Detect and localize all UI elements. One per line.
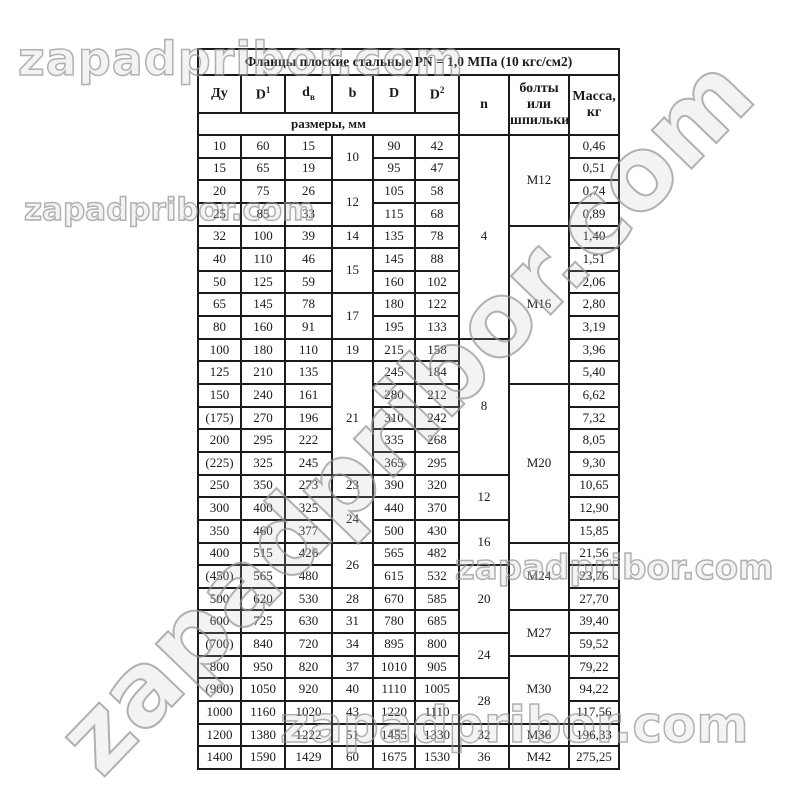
cell-du: 1200 [198,724,241,747]
cell-dv: 630 [285,610,332,633]
cell-dv: 91 [285,316,332,339]
cell-du: 1400 [198,746,241,769]
cell-d2: 184 [415,361,459,384]
cell-d: 780 [373,610,415,633]
cell-b: 40 [332,678,373,701]
cell-mass: 0,46 [569,135,619,158]
cell-d: 1110 [373,678,415,701]
cell-n: 32 [459,724,509,747]
cell-n: 4 [459,135,509,339]
cell-dv: 26 [285,180,332,203]
cell-d2: 800 [415,633,459,656]
cell-du: (225) [198,452,241,475]
cell-dv: 426 [285,543,332,566]
cell-mass: 196,33 [569,724,619,747]
column-header-row: Ду D1 dв b D D2 n болты или шпильки Масс… [198,75,619,113]
cell-mass: 59,52 [569,633,619,656]
cell-d: 670 [373,588,415,611]
cell-b: 28 [332,588,373,611]
cell-du: (700) [198,633,241,656]
cell-dv: 245 [285,452,332,475]
table-header: Фланцы плоские стальные PN = 1,0 МПа (10… [198,49,619,135]
cell-d1: 75 [241,180,285,203]
cell-d2: 268 [415,429,459,452]
cell-d: 500 [373,520,415,543]
cell-mass: 39,40 [569,610,619,633]
cell-n: 24 [459,633,509,678]
table-row: 800950820371010905М3079,22 [198,656,619,679]
cell-dv: 19 [285,158,332,181]
cell-dv: 1020 [285,701,332,724]
cell-mass: 3,96 [569,339,619,362]
cell-d2: 102 [415,271,459,294]
cell-d: 335 [373,429,415,452]
cell-d1: 110 [241,248,285,271]
cell-n: 8 [459,339,509,475]
cell-b: 60 [332,746,373,769]
cell-d: 215 [373,339,415,362]
cell-du: 32 [198,226,241,249]
cell-bolts: М27 [509,610,569,655]
cell-b: 34 [332,633,373,656]
cell-d1: 65 [241,158,285,181]
cell-bolts: М24 [509,543,569,611]
cell-mass: 0,51 [569,158,619,181]
col-header-dv: dв [285,75,332,113]
col-header-dv-base: d [302,85,310,100]
cell-mass: 27,70 [569,588,619,611]
cell-b: 12 [332,180,373,225]
cell-d1: 565 [241,565,285,588]
cell-d1: 270 [241,407,285,430]
cell-b: 15 [332,248,373,293]
cell-dv: 720 [285,633,332,656]
cell-d2: 242 [415,407,459,430]
cell-dv: 78 [285,293,332,316]
cell-d2: 295 [415,452,459,475]
cell-d2: 88 [415,248,459,271]
cell-d: 565 [373,543,415,566]
cell-d1: 240 [241,384,285,407]
col-header-d2-base: D [430,87,440,102]
cell-mass: 12,90 [569,497,619,520]
cell-d1: 125 [241,271,285,294]
cell-b: 51 [332,724,373,747]
cell-d2: 1530 [415,746,459,769]
cell-d: 895 [373,633,415,656]
cell-d1: 325 [241,452,285,475]
col-header-d1-base: D [256,87,266,102]
cell-d: 1675 [373,746,415,769]
cell-b: 26 [332,543,373,588]
cell-d2: 370 [415,497,459,520]
cell-d: 365 [373,452,415,475]
cell-bolts: М12 [509,135,569,226]
cell-dv: 196 [285,407,332,430]
table-row: 150240161280212М206,62 [198,384,619,407]
cell-du: 350 [198,520,241,543]
cell-d1: 180 [241,339,285,362]
cell-mass: 3,19 [569,316,619,339]
cell-d1: 145 [241,293,285,316]
cell-bolts: М42 [509,746,569,769]
cell-d: 280 [373,384,415,407]
cell-du: 1000 [198,701,241,724]
sizes-subheader: размеры, мм [198,113,459,135]
cell-d1: 1380 [241,724,285,747]
cell-d2: 122 [415,293,459,316]
col-header-mass: Масса, кг [569,75,619,135]
cell-du: 250 [198,475,241,498]
cell-d: 615 [373,565,415,588]
cell-d: 145 [373,248,415,271]
cell-d2: 532 [415,565,459,588]
flange-spec-table: Фланцы плоские стальные PN = 1,0 МПа (10… [197,48,620,770]
cell-dv: 820 [285,656,332,679]
cell-d: 1455 [373,724,415,747]
cell-mass: 23,76 [569,565,619,588]
cell-d2: 1005 [415,678,459,701]
cell-du: 15 [198,158,241,181]
cell-d1: 100 [241,226,285,249]
table-row: 120013801222511455133032М36196,33 [198,724,619,747]
cell-d1: 515 [241,543,285,566]
cell-d1: 950 [241,656,285,679]
col-header-d1: D1 [241,75,285,113]
cell-d: 115 [373,203,415,226]
cell-d2: 320 [415,475,459,498]
cell-d2: 78 [415,226,459,249]
cell-dv: 1429 [285,746,332,769]
cell-d2: 133 [415,316,459,339]
scanned-document-page: zapadpribor.com zapadpribor.com zapadpri… [0,0,800,800]
cell-du: 200 [198,429,241,452]
cell-du: 400 [198,543,241,566]
cell-n: 20 [459,565,509,633]
cell-b: 24 [332,497,373,542]
cell-du: 20 [198,180,241,203]
cell-d: 180 [373,293,415,316]
cell-mass: 2,80 [569,293,619,316]
col-header-n: n [459,75,509,135]
cell-du: 800 [198,656,241,679]
table-row: 32100391413578М161,40 [198,226,619,249]
cell-d1: 840 [241,633,285,656]
cell-b: 10 [332,135,373,180]
cell-du: 80 [198,316,241,339]
table-title-row: Фланцы плоские стальные PN = 1,0 МПа (10… [198,49,619,75]
cell-d1: 60 [241,135,285,158]
cell-b: 43 [332,701,373,724]
cell-bolts: М16 [509,226,569,384]
col-header-du: Ду [198,75,241,113]
cell-b: 17 [332,293,373,338]
cell-d2: 58 [415,180,459,203]
flange-table-body: 1060151090424М120,4615651995470,51207526… [198,135,619,769]
cell-mass: 117,56 [569,701,619,724]
cell-mass: 15,85 [569,520,619,543]
cell-d: 1220 [373,701,415,724]
cell-bolts: М20 [509,384,569,542]
cell-du: 300 [198,497,241,520]
cell-d2: 905 [415,656,459,679]
cell-dv: 273 [285,475,332,498]
cell-d1: 85 [241,203,285,226]
table-row: 60072563031780685М2739,40 [198,610,619,633]
cell-mass: 275,25 [569,746,619,769]
cell-d: 95 [373,158,415,181]
cell-dv: 33 [285,203,332,226]
cell-dv: 39 [285,226,332,249]
cell-d1: 160 [241,316,285,339]
table-row: 140015901429601675153036М42275,25 [198,746,619,769]
cell-d: 390 [373,475,415,498]
cell-du: 40 [198,248,241,271]
cell-d2: 47 [415,158,459,181]
cell-du: 10 [198,135,241,158]
cell-du: 150 [198,384,241,407]
cell-d2: 1110 [415,701,459,724]
cell-d: 105 [373,180,415,203]
cell-d1: 210 [241,361,285,384]
cell-dv: 135 [285,361,332,384]
cell-mass: 5,40 [569,361,619,384]
cell-mass: 0,89 [569,203,619,226]
cell-dv: 377 [285,520,332,543]
cell-du: 600 [198,610,241,633]
cell-dv: 161 [285,384,332,407]
cell-d1: 725 [241,610,285,633]
cell-dv: 530 [285,588,332,611]
cell-mass: 10,65 [569,475,619,498]
cell-n: 16 [459,520,509,565]
cell-b: 19 [332,339,373,362]
cell-du: 500 [198,588,241,611]
cell-du: (450) [198,565,241,588]
cell-du: 125 [198,361,241,384]
table-row: 40051542626565482М2421,56 [198,543,619,566]
col-header-d: D [373,75,415,113]
cell-mass: 0,74 [569,180,619,203]
cell-bolts: М30 [509,656,569,724]
cell-d: 90 [373,135,415,158]
cell-dv: 46 [285,248,332,271]
cell-dv: 222 [285,429,332,452]
cell-d2: 585 [415,588,459,611]
cell-du: (175) [198,407,241,430]
cell-n: 28 [459,678,509,723]
cell-mass: 9,30 [569,452,619,475]
col-header-d2: D2 [415,75,459,113]
cell-dv: 325 [285,497,332,520]
cell-d1: 1160 [241,701,285,724]
cell-bolts: М36 [509,724,569,747]
cell-d: 310 [373,407,415,430]
cell-d: 135 [373,226,415,249]
cell-d: 1010 [373,656,415,679]
cell-mass: 1,40 [569,226,619,249]
cell-du: (900) [198,678,241,701]
cell-mass: 8,05 [569,429,619,452]
cell-dv: 110 [285,339,332,362]
cell-d: 440 [373,497,415,520]
cell-d2: 1330 [415,724,459,747]
cell-d1: 1050 [241,678,285,701]
cell-du: 50 [198,271,241,294]
cell-mass: 1,51 [569,248,619,271]
cell-d1: 620 [241,588,285,611]
cell-b: 21 [332,361,373,474]
cell-mass: 21,56 [569,543,619,566]
cell-d: 160 [373,271,415,294]
col-header-dv-sub: в [310,92,315,102]
table-title: Фланцы плоские стальные PN = 1,0 МПа (10… [198,49,619,75]
cell-d2: 158 [415,339,459,362]
cell-du: 25 [198,203,241,226]
cell-mass: 6,62 [569,384,619,407]
cell-d1: 350 [241,475,285,498]
cell-d2: 685 [415,610,459,633]
cell-dv: 480 [285,565,332,588]
cell-b: 31 [332,610,373,633]
cell-mass: 79,22 [569,656,619,679]
cell-d2: 430 [415,520,459,543]
cell-dv: 15 [285,135,332,158]
cell-mass: 7,32 [569,407,619,430]
cell-d: 195 [373,316,415,339]
cell-d1: 1590 [241,746,285,769]
cell-du: 65 [198,293,241,316]
cell-n: 36 [459,746,509,769]
cell-d2: 42 [415,135,459,158]
col-header-d2-sup: 2 [440,85,445,95]
cell-d1: 460 [241,520,285,543]
cell-d1: 295 [241,429,285,452]
cell-mass: 94,22 [569,678,619,701]
table-row: 1060151090424М120,46 [198,135,619,158]
cell-d2: 482 [415,543,459,566]
cell-n: 12 [459,475,509,520]
col-header-b: b [332,75,373,113]
cell-b: 23 [332,475,373,498]
col-header-bolts: болты или шпильки [509,75,569,135]
cell-b: 37 [332,656,373,679]
cell-dv: 1222 [285,724,332,747]
cell-d2: 212 [415,384,459,407]
cell-d: 245 [373,361,415,384]
cell-b: 14 [332,226,373,249]
cell-d2: 68 [415,203,459,226]
cell-dv: 920 [285,678,332,701]
cell-dv: 59 [285,271,332,294]
cell-d1: 400 [241,497,285,520]
col-header-d1-sup: 1 [266,85,271,95]
cell-mass: 2,06 [569,271,619,294]
cell-du: 100 [198,339,241,362]
